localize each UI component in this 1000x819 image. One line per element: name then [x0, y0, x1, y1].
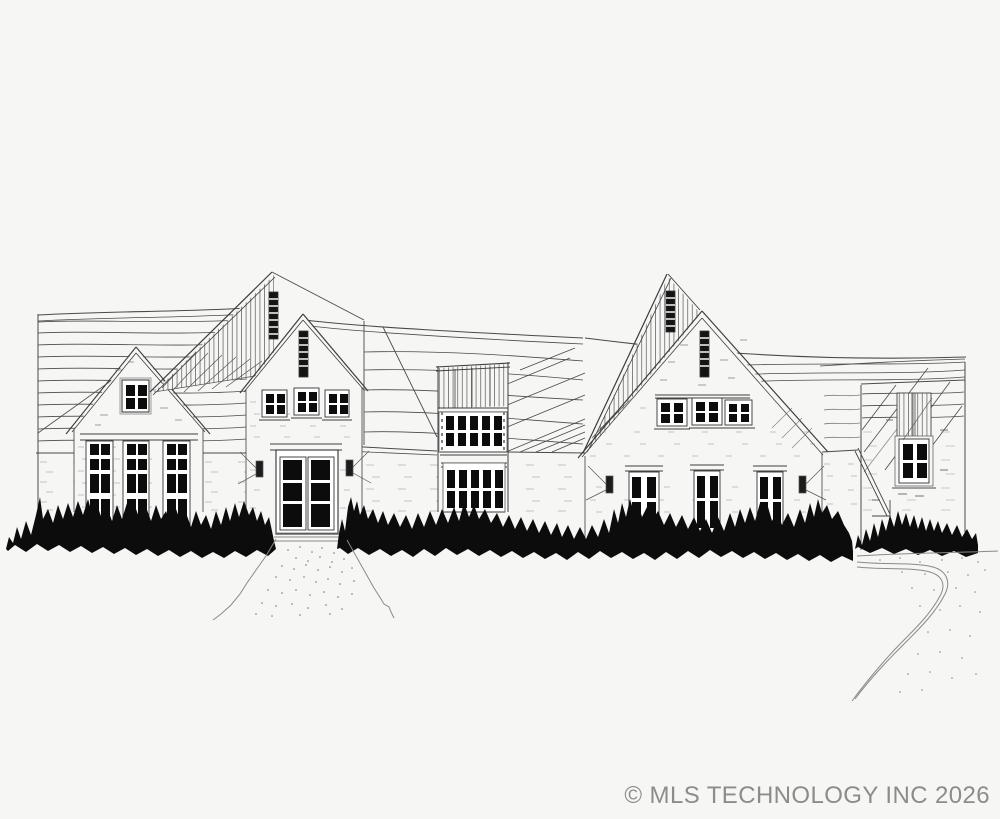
- gable-vent: [700, 331, 709, 377]
- attic-window: [120, 378, 151, 414]
- stair-rail: [855, 448, 890, 516]
- gable-vent: [299, 331, 308, 377]
- mls-watermark: © MLS TECHNOLOGY INC 2026: [624, 782, 990, 810]
- right-gable: [578, 274, 828, 545]
- driveway-stipple: [879, 557, 986, 693]
- front-door: [270, 444, 344, 541]
- elevation-sketch-image: © MLS TECHNOLOGY INC 2026: [0, 0, 1000, 819]
- right-wing: [822, 395, 890, 516]
- entry-upper-windows: [259, 388, 352, 420]
- right-gable-upper-windows: [654, 398, 755, 429]
- left-wing-windows: [86, 441, 190, 525]
- gable-vent: [666, 291, 675, 332]
- house-sketch: [0, 0, 1000, 819]
- walkway-stipple: [255, 546, 355, 617]
- center-window-bay: [436, 362, 510, 512]
- side-driveway: [852, 551, 998, 701]
- gable-vent: [269, 292, 278, 339]
